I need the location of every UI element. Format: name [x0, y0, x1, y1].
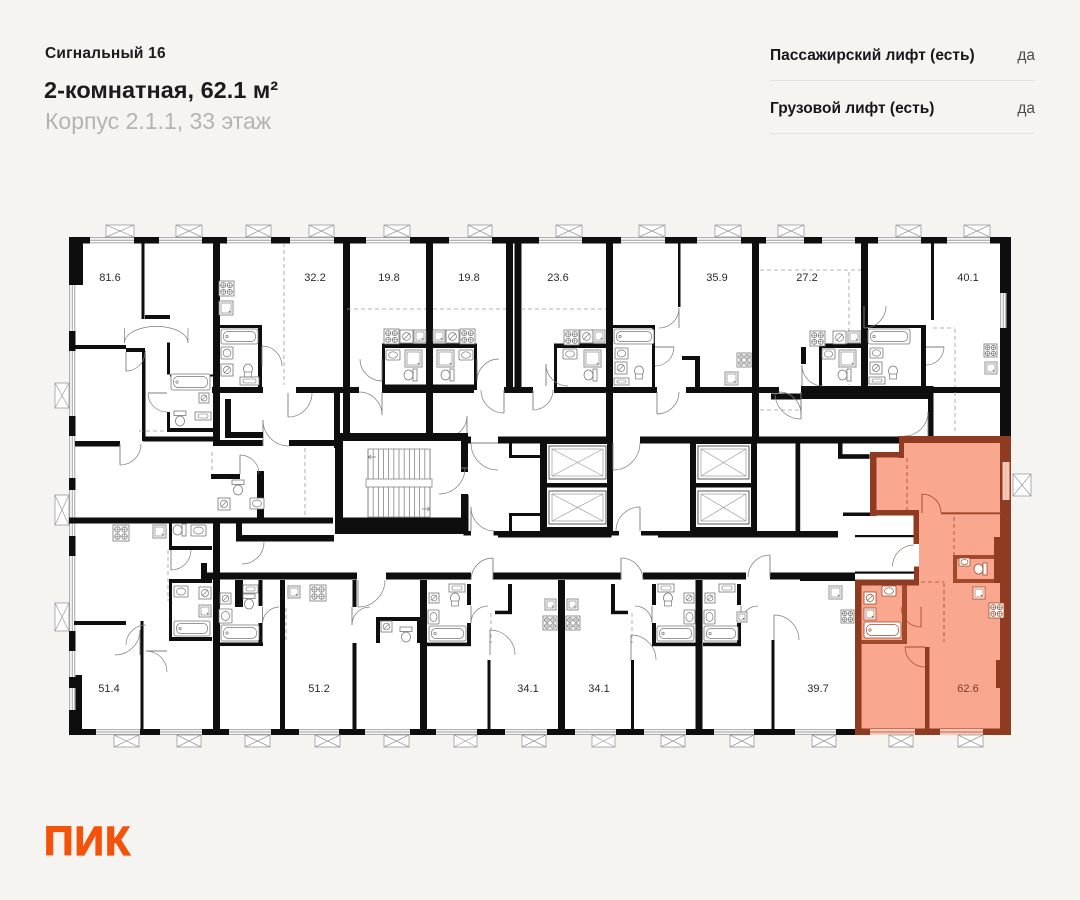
svg-text:62.6: 62.6 [957, 683, 978, 695]
svg-text:34.1: 34.1 [588, 683, 609, 695]
svg-text:23.6: 23.6 [547, 272, 568, 284]
svg-text:81.6: 81.6 [99, 272, 120, 284]
svg-text:51.4: 51.4 [98, 683, 119, 695]
svg-text:27.2: 27.2 [796, 272, 817, 284]
svg-text:40.1: 40.1 [957, 272, 978, 284]
svg-text:19.8: 19.8 [378, 272, 399, 284]
svg-text:51.2: 51.2 [308, 683, 329, 695]
svg-text:34.1: 34.1 [517, 683, 538, 695]
svg-text:19.8: 19.8 [458, 272, 479, 284]
svg-text:39.7: 39.7 [807, 683, 828, 695]
svg-text:32.2: 32.2 [304, 272, 325, 284]
svg-text:35.9: 35.9 [706, 272, 727, 284]
